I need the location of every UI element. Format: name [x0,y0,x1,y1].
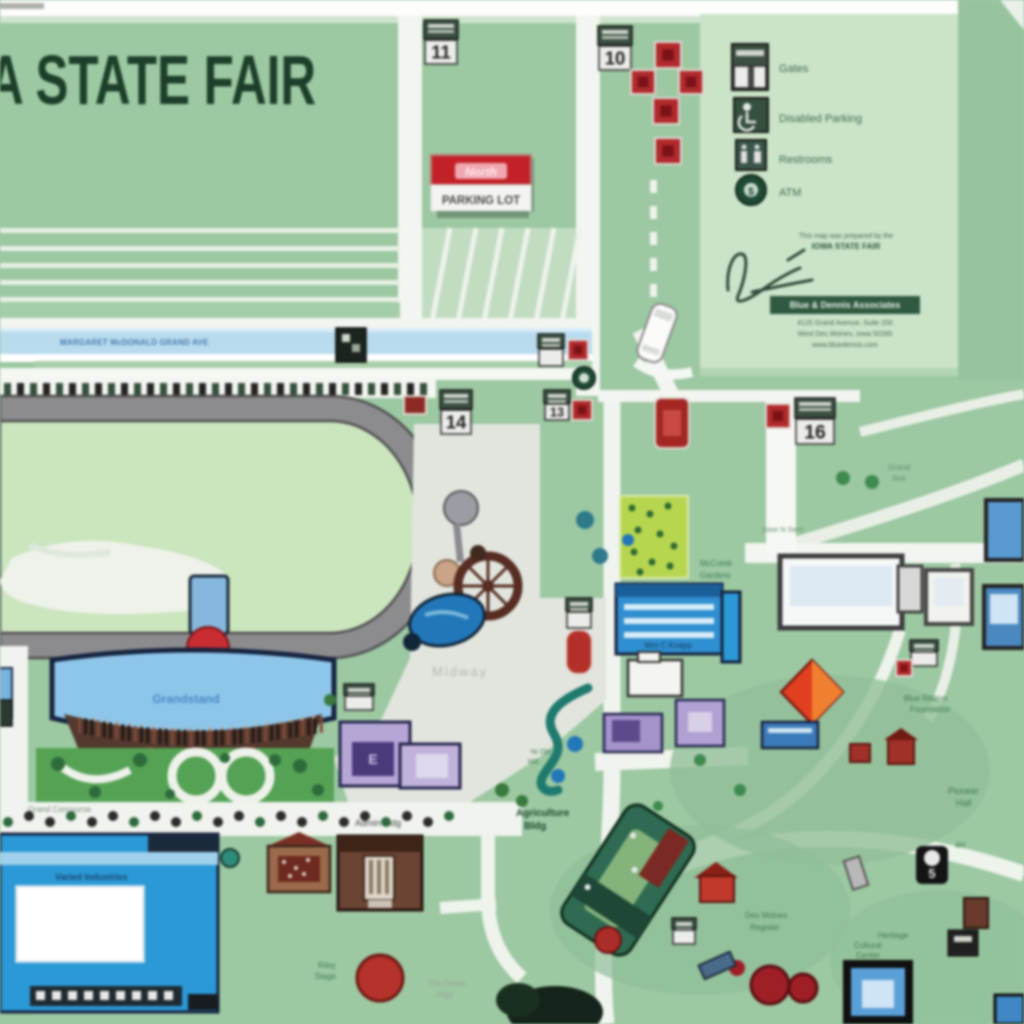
svg-text:PARKING LOT: PARKING LOT [442,195,520,207]
svg-text:Agriculture: Agriculture [516,808,570,819]
svg-text:Disabled Parking: Disabled Parking [779,113,862,125]
svg-text:Pioneer: Pioneer [948,786,979,796]
svg-text:rings: rings [436,990,453,999]
svg-text:Bldg: Bldg [524,821,546,832]
svg-text:Mill: Mill [528,759,539,766]
svg-text:4125 Grand Avenue, Suite 200: 4125 Grand Avenue, Suite 200 [797,320,893,327]
svg-text:E: E [368,751,377,767]
svg-text:Foundation: Foundation [910,705,950,714]
svg-text:IOWA STATE FAIR: IOWA STATE FAIR [0,41,316,119]
svg-text:Grand Concourse: Grand Concourse [28,805,92,814]
svg-text:Midway: Midway [432,664,488,679]
svg-text:MARGARET McDONALD GRAND AVE: MARGARET McDONALD GRAND AVE [60,338,209,347]
svg-text:14: 14 [446,412,467,433]
svg-text:IOWA STATE FAIR: IOWA STATE FAIR [812,242,881,251]
svg-text:Blue Ribbon: Blue Ribbon [904,694,948,703]
svg-text:Steer N Stein: Steer N Stein [762,527,804,534]
svg-text:Stage: Stage [315,972,336,981]
svg-text:Ye Old: Ye Old [530,749,551,756]
svg-text:North: North [465,165,497,179]
svg-text:Riley: Riley [318,961,336,970]
svg-text:16: 16 [804,422,826,443]
svg-text:11: 11 [431,42,451,63]
svg-text:The Dome: The Dome [428,979,466,988]
svg-text:Gardens: Gardens [700,571,731,580]
svg-text:ATM: ATM [779,187,801,199]
svg-text:10: 10 [605,48,626,69]
svg-text:Grandstand: Grandstand [152,692,219,706]
svg-text:Hall: Hall [956,798,972,808]
svg-text:Restrooms: Restrooms [779,154,833,166]
svg-text:West Des Moines, Iowa 50265: West Des Moines, Iowa 50265 [798,331,893,338]
svg-text:13: 13 [550,405,564,419]
svg-text:5: 5 [928,866,935,881]
svg-text:Register: Register [750,923,780,932]
svg-text:Cultural: Cultural [854,941,882,950]
svg-text:Gates: Gates [779,63,809,75]
svg-text:Des Moines: Des Moines [745,911,787,920]
svg-text:4H: 4H [955,841,965,850]
svg-text:Ave: Ave [892,474,906,483]
svg-text:Blue & Dennis Associates: Blue & Dennis Associates [790,300,901,310]
svg-text:Wm C Knapp: Wm C Knapp [644,641,692,650]
svg-text:www.bluedennis.com: www.bluedennis.com [811,342,878,349]
svg-text:Center: Center [856,951,880,960]
svg-text:Grand: Grand [888,463,910,472]
svg-text:This map was prepared by the: This map was prepared by the [799,233,893,240]
svg-text:McComb: McComb [700,559,733,568]
svg-text:$: $ [748,186,754,198]
svg-text:Heritage: Heritage [878,931,909,940]
svg-text:Varied Industries: Varied Industries [55,872,128,882]
